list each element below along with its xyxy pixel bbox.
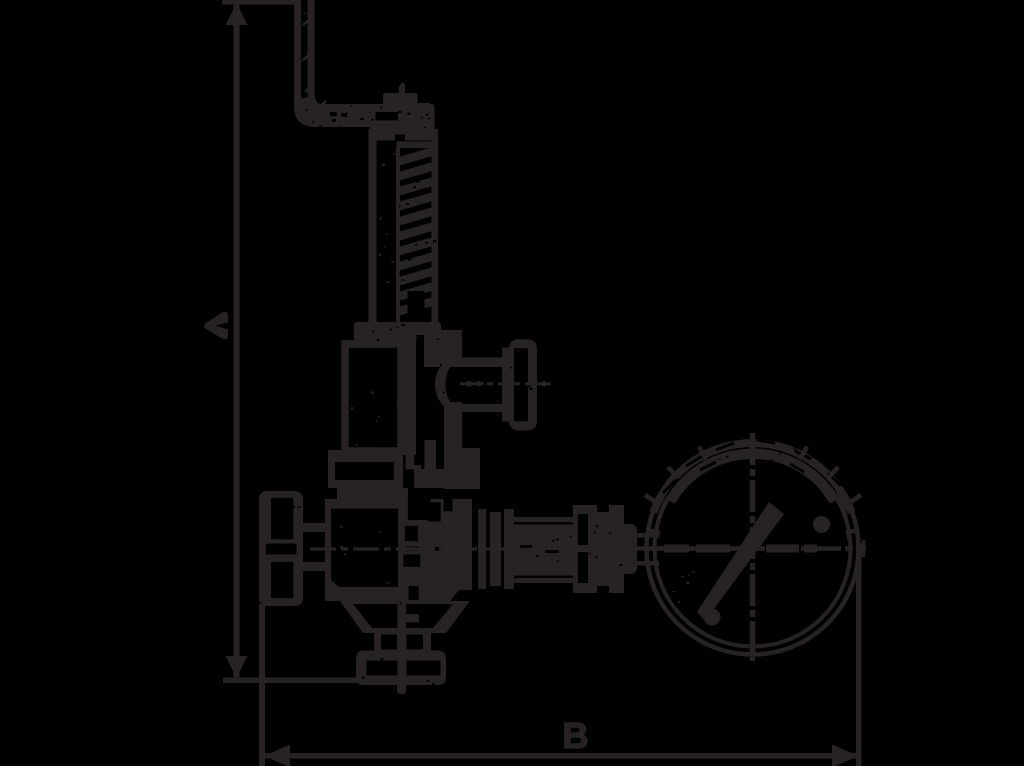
svg-text:B: B	[563, 715, 589, 756]
